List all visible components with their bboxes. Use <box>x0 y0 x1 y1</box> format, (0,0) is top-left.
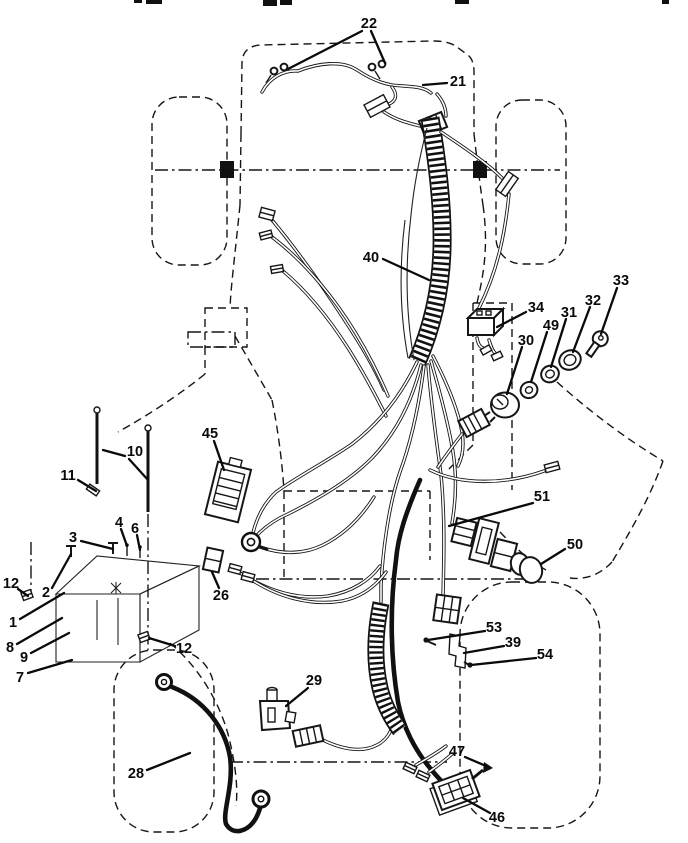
arrowhead <box>483 762 493 773</box>
spade-terminal <box>241 572 255 583</box>
callout-51: 51 <box>534 489 550 505</box>
callout-32: 32 <box>585 293 601 309</box>
callout-28: 28 <box>128 766 144 782</box>
fuse-holder <box>205 455 253 522</box>
callout-45: 45 <box>202 426 218 442</box>
callout-39: 39 <box>505 635 521 651</box>
leader-line-7 <box>28 660 72 673</box>
battery-box <box>56 594 140 662</box>
callout-10: 10 <box>127 444 143 460</box>
callout-34: 34 <box>528 300 544 316</box>
inline-connector-26 <box>203 548 255 583</box>
leader-line-29 <box>286 688 308 706</box>
leader-dot-53 <box>423 637 428 642</box>
fender-edge-left <box>170 643 237 806</box>
chassis-left-edge <box>230 205 240 308</box>
leader-line-26 <box>212 572 219 588</box>
leader-line-30 <box>507 347 522 394</box>
footrest-outline <box>118 308 284 491</box>
callout-7: 7 <box>16 670 24 686</box>
bottom-connector <box>429 762 493 815</box>
ignition-switch-group <box>458 328 610 437</box>
leader-line-21 <box>423 83 447 85</box>
flag-terminal <box>259 207 275 220</box>
ignition-switch <box>484 393 519 423</box>
seat-switch-plug <box>293 725 324 746</box>
battery-rod-long <box>145 425 151 512</box>
leader-line-33 <box>601 288 617 334</box>
callout-31: 31 <box>561 305 577 321</box>
callout-21: 21 <box>450 74 466 90</box>
callout-53: 53 <box>486 620 502 636</box>
retainer-ring-49 <box>518 379 540 401</box>
leader-line-6 <box>137 535 140 550</box>
callout-26: 26 <box>213 588 229 604</box>
leader-line-4 <box>121 529 127 546</box>
callout-22: 22 <box>361 16 377 32</box>
spade-terminal <box>228 564 242 575</box>
ground-cable <box>157 675 270 832</box>
retainer-ring-31 <box>538 363 561 385</box>
leader-line-54 <box>471 658 536 665</box>
callout-12: 12 <box>3 576 19 592</box>
leader-line-22 <box>371 31 385 63</box>
ring-terminal <box>242 533 268 551</box>
rear-wheel-right <box>460 582 600 828</box>
leader-dot-54 <box>467 662 472 667</box>
leader-line-39 <box>464 646 504 653</box>
seat-switch <box>260 688 323 747</box>
four-pin-connector <box>433 594 460 623</box>
bolt-mark <box>111 582 121 594</box>
bezel-ring-32 <box>556 347 584 374</box>
callout-47: 47 <box>449 744 465 760</box>
ignition-key <box>583 328 611 359</box>
callout-33: 33 <box>613 273 629 289</box>
front-wheel-left <box>152 97 227 265</box>
relay-box <box>468 309 503 361</box>
cropped-header-text <box>134 0 669 6</box>
wiring-harness-diagram: 2221403430493132334510114631221897122651… <box>0 0 688 843</box>
battery-group <box>21 407 199 662</box>
diagram-page: 2221403430493132334510114631221897122651… <box>0 0 688 843</box>
callout-6: 6 <box>131 521 139 537</box>
callout-12: 12 <box>176 641 192 657</box>
headlight-harness <box>262 61 447 136</box>
chassis-right-edge <box>477 205 485 303</box>
callout-40: 40 <box>363 250 379 266</box>
bullet-terminals-right <box>369 61 386 79</box>
spade-terminal <box>270 265 283 274</box>
callout-29: 29 <box>306 673 322 689</box>
leader-line-28 <box>147 753 190 770</box>
leader-line-12 <box>149 638 175 646</box>
leader-line-9 <box>31 633 69 653</box>
callout-46: 46 <box>489 810 505 826</box>
callout-50: 50 <box>567 537 583 553</box>
leader-line-50 <box>541 549 565 564</box>
callout-9: 9 <box>20 650 28 666</box>
switch-bezel-group <box>451 518 517 571</box>
spade-terminal <box>544 461 560 472</box>
spade-terminal <box>259 230 272 240</box>
callout-2: 2 <box>42 585 50 601</box>
leader-line-47 <box>465 757 486 766</box>
callout-11: 11 <box>60 468 75 484</box>
callout-4: 4 <box>115 515 123 531</box>
battery-rod-short <box>94 407 100 484</box>
callout-49: 49 <box>543 318 559 334</box>
callout-30: 30 <box>518 333 534 349</box>
callout-8: 8 <box>6 640 14 656</box>
callout-1: 1 <box>9 615 17 631</box>
leader-line-10 <box>129 459 148 480</box>
knob <box>508 551 545 585</box>
leader-line-10 <box>103 450 125 456</box>
leader-line-40 <box>383 259 429 280</box>
axle-mount-left <box>220 161 234 178</box>
callout-54: 54 <box>537 647 553 663</box>
lower-harness-coil <box>376 603 400 730</box>
callout-3: 3 <box>69 530 77 546</box>
